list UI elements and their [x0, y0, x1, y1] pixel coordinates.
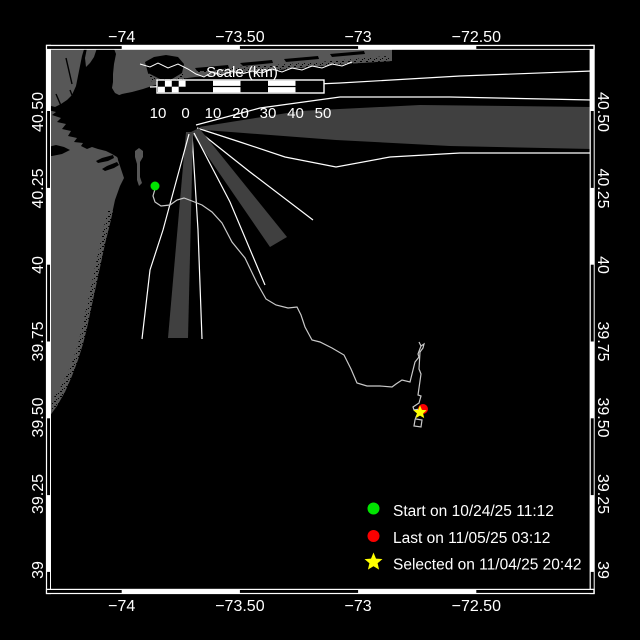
svg-text:20: 20 — [232, 105, 249, 122]
svg-text:40: 40 — [594, 256, 611, 274]
svg-text:40.25: 40.25 — [594, 168, 611, 208]
svg-text:Scale (km): Scale (km) — [206, 64, 278, 81]
svg-text:39.50: 39.50 — [594, 397, 611, 437]
svg-text:−73: −73 — [345, 598, 372, 615]
svg-text:−74: −74 — [108, 29, 135, 46]
svg-text:40: 40 — [287, 105, 304, 122]
svg-text:0: 0 — [181, 105, 189, 122]
svg-text:Selected on 11/04/25 20:42: Selected on 11/04/25 20:42 — [393, 557, 581, 574]
svg-text:40: 40 — [30, 256, 47, 274]
svg-text:−73.50: −73.50 — [215, 598, 264, 615]
svg-text:10: 10 — [150, 105, 167, 122]
svg-text:30: 30 — [260, 105, 277, 122]
svg-text:39.50: 39.50 — [30, 397, 47, 437]
svg-text:Last on 11/05/25 03:12: Last on 11/05/25 03:12 — [393, 530, 550, 547]
svg-text:−72.50: −72.50 — [452, 29, 501, 46]
svg-text:39: 39 — [30, 561, 47, 579]
svg-text:39.75: 39.75 — [30, 321, 47, 361]
svg-text:Start on 10/24/25 11:12: Start on 10/24/25 11:12 — [393, 503, 554, 520]
svg-text:−73.50: −73.50 — [215, 29, 264, 46]
svg-text:10: 10 — [205, 105, 222, 122]
svg-text:39: 39 — [594, 561, 611, 579]
svg-text:39.25: 39.25 — [30, 474, 47, 514]
svg-text:39.25: 39.25 — [594, 474, 611, 514]
svg-text:50: 50 — [315, 105, 332, 122]
svg-text:−74: −74 — [108, 598, 135, 615]
svg-text:40.50: 40.50 — [30, 92, 47, 132]
svg-text:40.25: 40.25 — [30, 168, 47, 208]
svg-text:39.75: 39.75 — [594, 321, 611, 361]
svg-text:−73: −73 — [345, 29, 372, 46]
svg-text:−72.50: −72.50 — [452, 598, 501, 615]
svg-text:40.50: 40.50 — [594, 92, 611, 132]
